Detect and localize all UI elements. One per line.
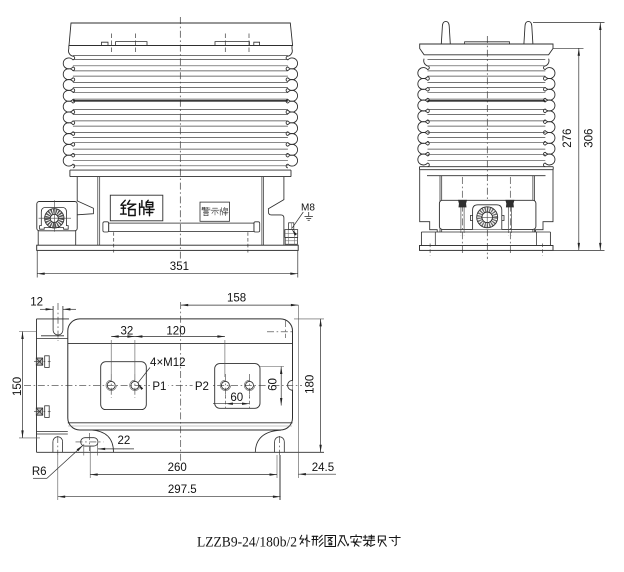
svg-text:150: 150	[12, 377, 24, 396]
svg-text:4×M12: 4×M12	[150, 357, 185, 369]
svg-text:180: 180	[304, 375, 316, 394]
svg-text:297.5: 297.5	[168, 484, 197, 496]
svg-text:P1: P1	[152, 381, 166, 393]
svg-text:LZZB9-24/180b/2: LZZB9-24/180b/2	[197, 535, 297, 551]
svg-text:351: 351	[170, 261, 189, 273]
svg-text:158: 158	[227, 293, 246, 305]
svg-text:24.5: 24.5	[312, 462, 334, 474]
svg-text:32: 32	[121, 325, 134, 337]
svg-text:276: 276	[562, 129, 574, 148]
svg-text:120: 120	[166, 325, 185, 337]
svg-text:P2: P2	[195, 381, 209, 393]
svg-text:306: 306	[584, 129, 596, 148]
svg-text:R6: R6	[32, 466, 47, 478]
svg-text:22: 22	[118, 435, 131, 447]
svg-text:60: 60	[268, 378, 280, 391]
svg-text:M8: M8	[301, 202, 315, 213]
svg-text:12: 12	[30, 296, 43, 308]
svg-text:260: 260	[168, 462, 187, 474]
svg-text:60: 60	[230, 392, 243, 404]
